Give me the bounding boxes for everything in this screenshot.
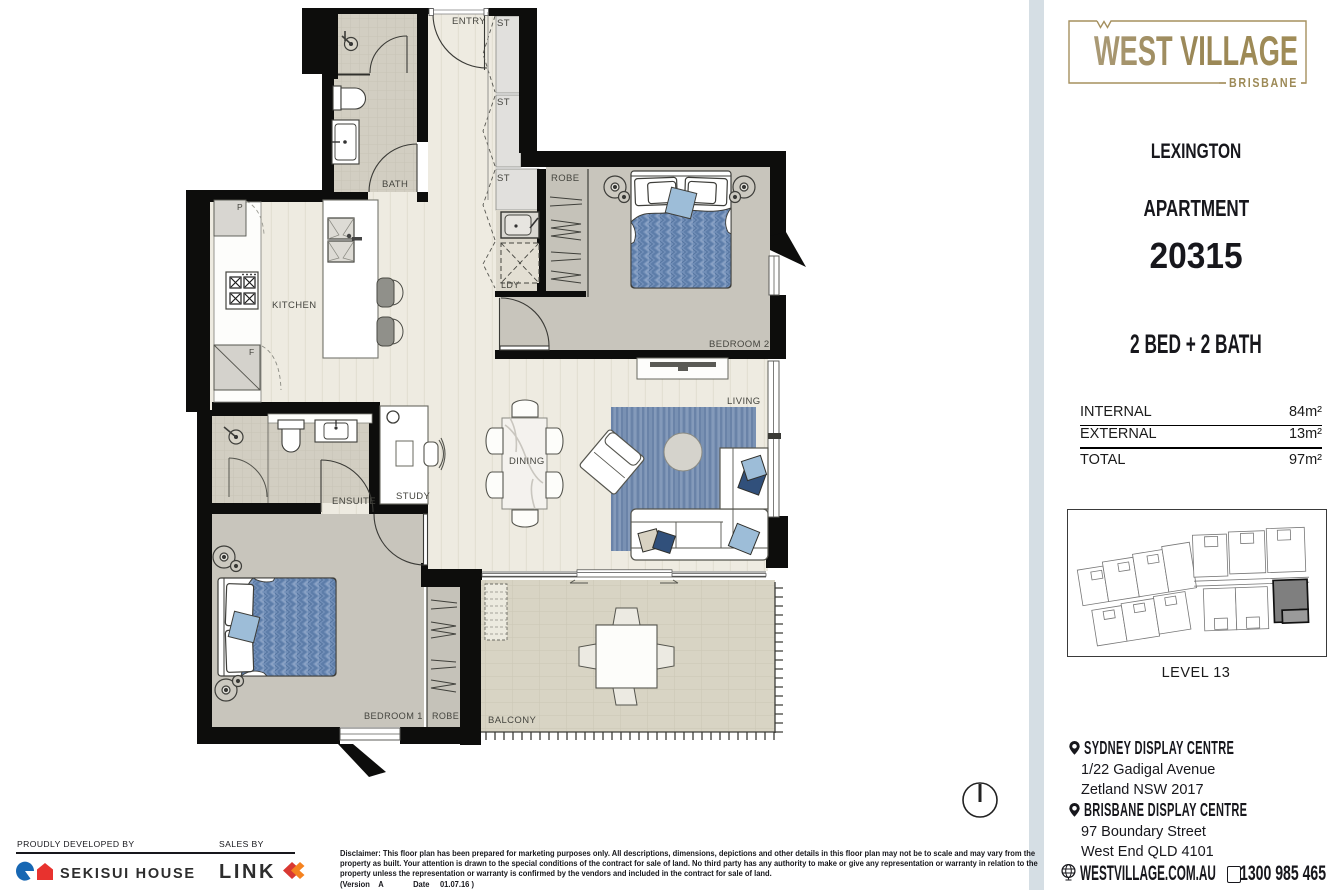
svg-text:STUDY: STUDY [396,491,430,502]
svg-text:BEDROOM 1: BEDROOM 1 [364,711,423,721]
svg-text:ST: ST [497,97,510,108]
svg-text:P: P [237,202,243,212]
svg-text:ST: ST [497,173,510,184]
svg-text:BATH: BATH [382,179,408,190]
svg-text:SEKISUI HOUSE: SEKISUI HOUSE [60,866,196,882]
svg-text:WEST VILLAGE: WEST VILLAGE [1094,27,1298,74]
svg-text:DINING: DINING [509,456,545,467]
svg-text:LDY: LDY [501,280,520,290]
svg-text:BALCONY: BALCONY [488,715,536,726]
svg-text:ENTRY: ENTRY [452,16,486,27]
svg-text:BRISBANE: BRISBANE [1229,75,1298,90]
svg-text:BEDROOM 2: BEDROOM 2 [709,339,770,350]
svg-text:LIVING: LIVING [727,396,761,407]
svg-text:ST: ST [497,18,510,29]
svg-text:F: F [249,347,255,357]
svg-text:ENSUITE: ENSUITE [332,496,376,507]
svg-text:KITCHEN: KITCHEN [272,300,317,311]
svg-text:ROBE: ROBE [432,711,459,721]
svg-text:LINK: LINK [219,861,276,883]
svg-text:ROBE: ROBE [551,173,580,184]
